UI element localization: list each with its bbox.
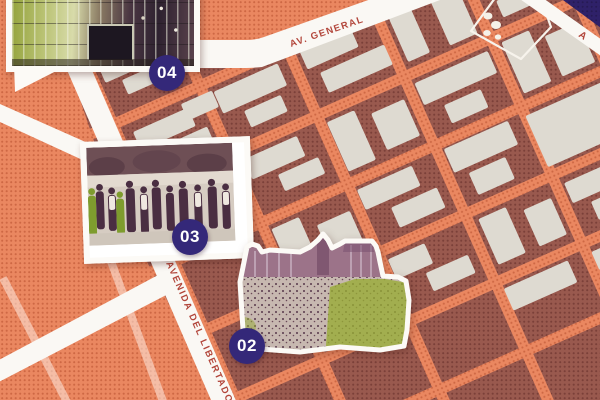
map-marker-04[interactable]: 04: [149, 55, 185, 91]
photo-03-image: [86, 142, 248, 257]
map-marker-02[interactable]: 02: [229, 328, 265, 364]
photo-04-doorway: [87, 24, 135, 60]
photo-03-crowd: [86, 143, 235, 246]
historic-map-canvas: AV. GENERAL AVENIDA DEL LIBERTADOR A: [0, 0, 600, 400]
map-marker-03[interactable]: 03: [172, 219, 208, 255]
